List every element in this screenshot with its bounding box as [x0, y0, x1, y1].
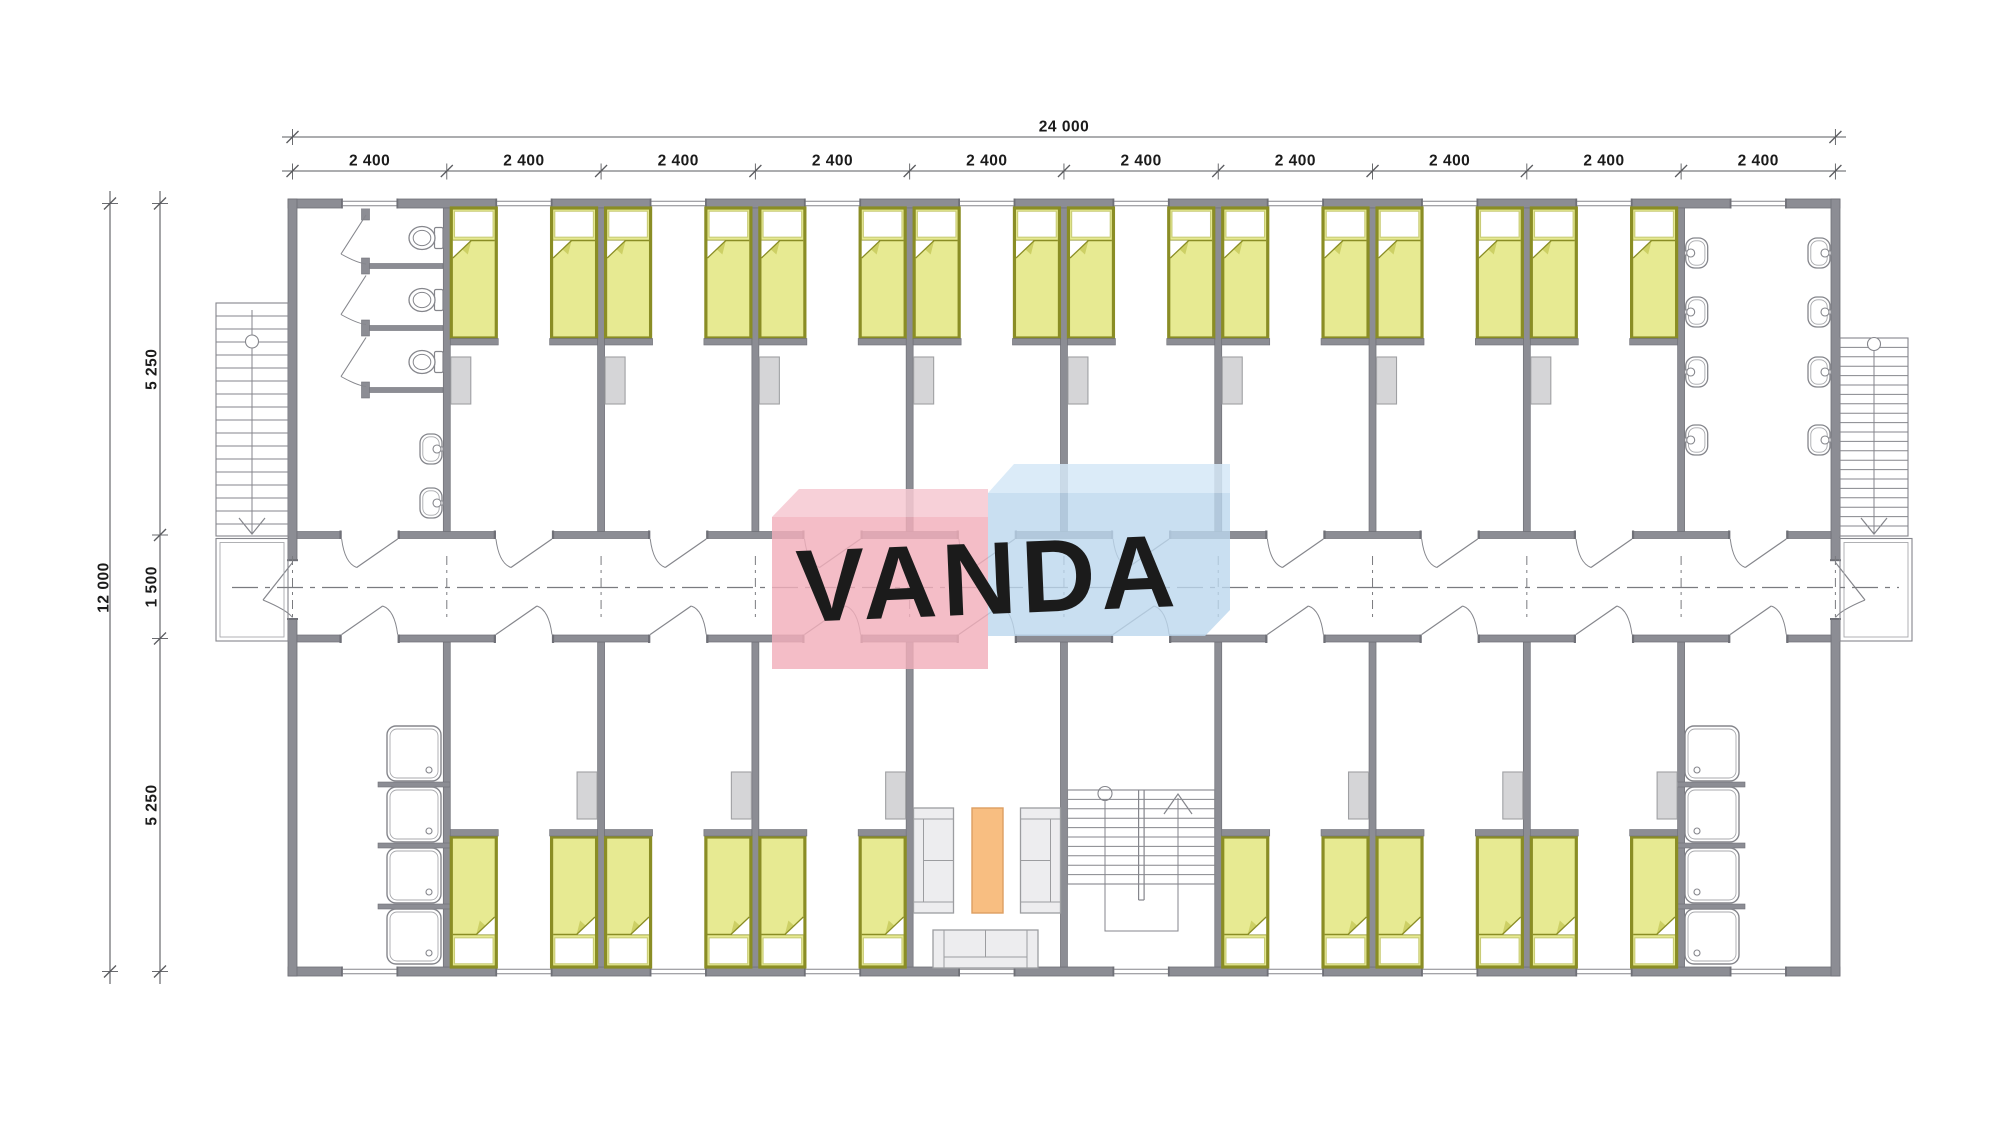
bed [760, 837, 805, 967]
shower-tray [1685, 848, 1739, 903]
locker-cabinet [1222, 357, 1242, 404]
bed [1477, 208, 1522, 338]
dim-label: 2 400 [1275, 153, 1316, 170]
bed-partition-stub [1630, 830, 1678, 837]
dim-label: 2 400 [658, 153, 699, 170]
bed [1632, 837, 1677, 967]
bed [1068, 208, 1113, 338]
dim-top-segments: 2 4002 4002 4002 4002 4002 4002 4002 400… [282, 153, 1846, 180]
window [958, 199, 1015, 209]
locker-cabinet [1531, 357, 1551, 404]
toilet [409, 351, 443, 374]
sofa [933, 930, 1038, 968]
bed [760, 208, 805, 338]
locker-cabinet [451, 357, 471, 404]
bed [451, 837, 496, 967]
bed-partition-stub [1321, 339, 1369, 346]
bed-partition-stub [1475, 339, 1523, 346]
window [1730, 199, 1787, 209]
window [804, 967, 861, 977]
window [341, 967, 398, 977]
dim-label: 5 250 [144, 784, 161, 825]
window [341, 199, 398, 209]
coffee-table [972, 808, 1003, 913]
window [1112, 967, 1169, 977]
bed [1223, 837, 1268, 967]
external-staircase-right [1840, 338, 1908, 537]
dim-label: 5 250 [144, 349, 161, 390]
bed-partition-stub [759, 339, 807, 346]
bed-partition-stub [1167, 339, 1215, 346]
window [1575, 967, 1632, 977]
bed [706, 837, 751, 967]
dim-label: 24 000 [1039, 119, 1089, 136]
locker-cabinet [577, 772, 597, 819]
bed-partition-stub [858, 339, 906, 346]
entry-porch-right [1840, 539, 1912, 642]
window [495, 199, 552, 209]
locker-cabinet [605, 357, 625, 404]
locker-cabinet [1068, 357, 1088, 404]
sink [1685, 297, 1708, 327]
window [804, 199, 861, 209]
window [1421, 967, 1478, 977]
sink [1685, 425, 1708, 455]
bed-partition-stub [1376, 830, 1424, 837]
shower-tray [387, 848, 441, 903]
bed [1531, 208, 1576, 338]
window [495, 967, 552, 977]
locker-cabinet [1377, 357, 1397, 404]
locker-cabinet [1657, 772, 1677, 819]
shower-tray [1685, 909, 1739, 964]
bed-partition-stub [550, 339, 598, 346]
bed [606, 837, 651, 967]
bed-partition-stub [450, 830, 498, 837]
logo-blue-top-face [988, 464, 1230, 493]
bed-partition-stub [704, 339, 752, 346]
bed [860, 208, 905, 338]
bed [1323, 837, 1368, 967]
sink [420, 434, 443, 464]
dim-label: 2 400 [966, 153, 1007, 170]
dim-label: 2 400 [1120, 153, 1161, 170]
bed [1014, 208, 1059, 338]
bed-partition-stub [1530, 339, 1578, 346]
bed-partition-stub [1067, 339, 1115, 346]
bed [1377, 837, 1422, 967]
bed [451, 208, 496, 338]
sink [1685, 357, 1708, 387]
sofa [1021, 808, 1061, 913]
dim-label: 1 500 [144, 566, 161, 607]
bed-partition-stub [858, 830, 906, 837]
bed-partition-stub [1222, 339, 1270, 346]
watermark-text: VANDA [794, 513, 1182, 644]
window [650, 199, 707, 209]
bed-partition-stub [450, 339, 498, 346]
bed-partition-stub [1376, 339, 1424, 346]
locker-cabinet [914, 357, 934, 404]
dim-label: 2 400 [349, 153, 390, 170]
dim-label: 2 400 [1583, 153, 1624, 170]
locker-cabinet [1349, 772, 1369, 819]
window [1730, 967, 1787, 977]
bed [706, 208, 751, 338]
bed [1223, 208, 1268, 338]
bed-partition-stub [1530, 830, 1578, 837]
sink [420, 488, 443, 518]
entry-door [1830, 559, 1865, 620]
sink [1808, 425, 1831, 455]
entry-door [263, 559, 298, 620]
dim-label: 2 400 [503, 153, 544, 170]
bed [914, 208, 959, 338]
bed-partition-stub [1321, 830, 1369, 837]
shower-tray [387, 909, 441, 964]
shower-tray [1685, 787, 1739, 842]
dim-top-total: 24 000 [282, 119, 1846, 146]
bed [552, 208, 597, 338]
floor-plan-drawing: VANDA 24 0002 4002 4002 4002 4002 4002 4… [0, 0, 2000, 1131]
bed [1323, 208, 1368, 338]
shower-tray [387, 726, 441, 781]
bed-partition-stub [913, 339, 961, 346]
locker-cabinet [886, 772, 906, 819]
logo-pink-top-face [772, 489, 988, 517]
sofa [914, 808, 954, 913]
shower-tray [1685, 726, 1739, 781]
bed [1531, 837, 1576, 967]
window [1112, 199, 1169, 209]
sink [1808, 238, 1831, 268]
entry-porch-left [216, 539, 288, 642]
floor-plan-page: VANDA 24 0002 4002 4002 4002 4002 4002 4… [0, 0, 2000, 1131]
sink [1808, 357, 1831, 387]
dim-left-total: 12 000 [96, 191, 119, 984]
bed [1377, 208, 1422, 338]
shower-tray [387, 787, 441, 842]
dim-label: 2 400 [812, 153, 853, 170]
window [1421, 199, 1478, 209]
bed [1632, 208, 1677, 338]
bed-partition-stub [1222, 830, 1270, 837]
bed-partition-stub [704, 830, 752, 837]
bed-partition-stub [759, 830, 807, 837]
locker-cabinet [759, 357, 779, 404]
bed-partition-stub [1012, 339, 1060, 346]
bed-partition-stub [550, 830, 598, 837]
window [1575, 199, 1632, 209]
window [650, 967, 707, 977]
toilet [409, 289, 443, 312]
window [1267, 199, 1324, 209]
dim-label: 12 000 [96, 562, 113, 612]
sink [1808, 297, 1831, 327]
toilet [409, 227, 443, 250]
bed-partition-stub [1475, 830, 1523, 837]
dim-label: 2 400 [1429, 153, 1470, 170]
bed [1477, 837, 1522, 967]
window [1267, 967, 1324, 977]
locker-cabinet [1503, 772, 1523, 819]
bed [606, 208, 651, 338]
bed-partition-stub [605, 830, 653, 837]
bed-partition-stub [605, 339, 653, 346]
dim-label: 2 400 [1738, 153, 1779, 170]
bed [860, 837, 905, 967]
dim-left-segments: 5 2501 5005 250 [144, 191, 169, 984]
sink [1685, 238, 1708, 268]
bed-partition-stub [1630, 339, 1678, 346]
external-staircase-left [216, 303, 288, 536]
bed [552, 837, 597, 967]
locker-cabinet [731, 772, 751, 819]
bed [1169, 208, 1214, 338]
